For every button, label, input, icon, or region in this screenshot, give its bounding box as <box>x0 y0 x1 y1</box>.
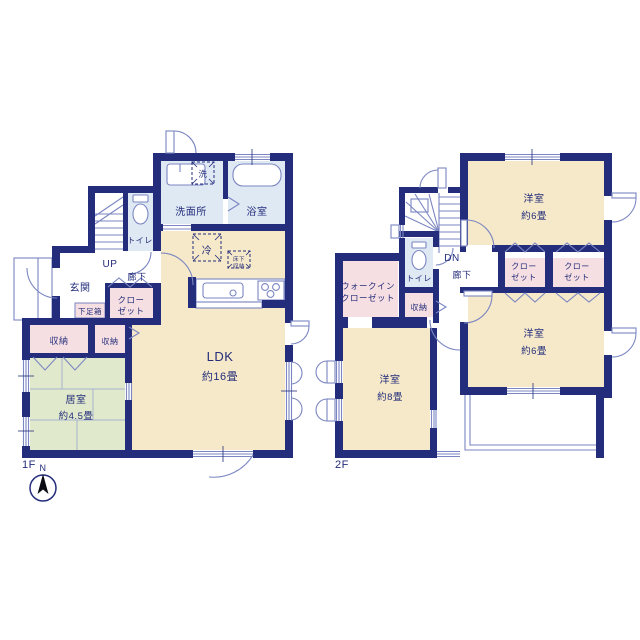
door-arc <box>420 170 438 188</box>
label-closet-b: クロー <box>564 262 590 271</box>
label-room-left: 洋室 <box>380 373 401 386</box>
label-room-left-size: 約8畳 <box>377 391 403 403</box>
floor-plan-page: 洗面所 浴室 洗 トイレ 玄関 UP 廊下 クロー ゼット 下足箱 収納 収納 … <box>0 0 640 640</box>
floor-plan-drawing: 洗面所 浴室 洗 トイレ 玄関 UP 廊下 クロー ゼット 下足箱 収納 収納 … <box>0 0 640 640</box>
toilet-icon-2f <box>412 242 426 270</box>
label-underfloor: 収納 <box>233 262 245 270</box>
door-leaf <box>438 168 446 188</box>
label-room-right-size: 約6畳 <box>521 345 547 357</box>
label-closet-a: クロー <box>511 262 537 271</box>
label-washer: 洗 <box>198 169 207 179</box>
label-room-right: 洋室 <box>524 327 545 340</box>
label-dn: DN <box>444 253 459 264</box>
label-tatami-size: 約4.5畳 <box>59 410 94 422</box>
door-leaf <box>461 220 467 246</box>
bathtub-icon <box>233 164 281 186</box>
door-arc <box>129 252 151 274</box>
door-leaf <box>166 131 174 153</box>
label-underfloor: 床下 <box>233 255 245 263</box>
toilet-icon-1f <box>133 195 148 224</box>
room-ldk-ext <box>132 325 161 450</box>
label-floor1: 1F <box>22 459 36 471</box>
label-compass-n: N <box>40 463 47 473</box>
compass <box>30 474 56 501</box>
label-storage-2f: 収納 <box>411 302 428 312</box>
casement-window-arc <box>291 398 302 420</box>
door-leaf <box>464 291 492 296</box>
label-floor2: 2F <box>335 459 349 471</box>
label-toilet-1f: トイレ <box>127 236 153 245</box>
window <box>437 452 460 457</box>
door-arc <box>612 333 636 357</box>
room-western-left <box>343 328 430 450</box>
label-room-top: 洋室 <box>524 192 545 205</box>
label-closet-b: ゼット <box>564 272 590 282</box>
label-fridge: 冷 <box>202 244 213 257</box>
label-shoe-box: 下足箱 <box>78 306 102 316</box>
door-arc <box>612 198 636 222</box>
label-washroom: 洗面所 <box>175 206 207 218</box>
label-walk-in-closet: クローゼット <box>341 293 395 303</box>
label-closet-a: ゼット <box>511 272 537 282</box>
label-closet-1f: ゼット <box>117 306 144 316</box>
door-leaf <box>612 193 636 198</box>
door-leaf <box>291 321 309 326</box>
sliding-door <box>163 226 191 230</box>
window <box>127 383 132 400</box>
label-bath: 浴室 <box>247 205 268 218</box>
label-up: UP <box>103 259 118 270</box>
floor2-room-fills <box>343 161 604 450</box>
door-arc <box>174 131 196 153</box>
entrance-porch <box>14 258 52 320</box>
label-closet-1f: クロー <box>117 295 144 305</box>
door-arc <box>291 326 309 344</box>
stairs-1f <box>95 197 123 249</box>
label-hallway-1f: 廊下 <box>127 271 146 282</box>
label-toilet-2f: トイレ <box>406 274 432 283</box>
door-leaf <box>612 328 636 333</box>
label-entrance: 玄関 <box>70 281 91 294</box>
room-ldk <box>161 231 285 450</box>
label-tatami: 居室 <box>66 393 87 406</box>
label-ldk-size: 約16畳 <box>202 369 238 383</box>
label-ldk: LDK <box>207 349 234 364</box>
window <box>432 410 437 428</box>
label-walk-in-closet: ウォークイン <box>341 281 395 291</box>
casement-window-arc <box>291 362 302 384</box>
label-storage-left: 収納 <box>49 335 68 346</box>
label-hallway-2f: 廊下 <box>452 269 471 280</box>
label-room-top-size: 約6畳 <box>521 210 547 222</box>
balcony <box>465 395 600 450</box>
door-arc <box>209 455 253 477</box>
room-western-right <box>468 293 604 387</box>
label-storage-right: 収納 <box>102 336 119 346</box>
